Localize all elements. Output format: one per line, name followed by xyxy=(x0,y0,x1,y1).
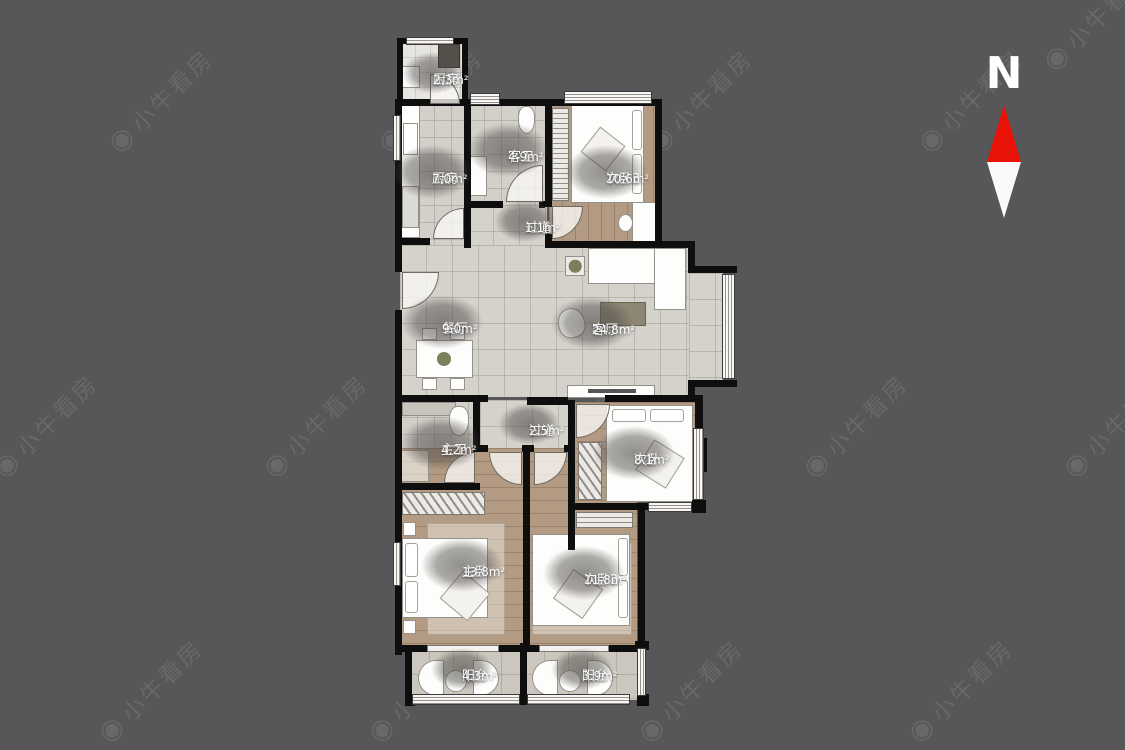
room-area: 8.1m² xyxy=(634,453,670,469)
table-plant xyxy=(437,352,451,366)
window xyxy=(393,542,401,586)
room-area: 24.8m² xyxy=(592,323,635,339)
window xyxy=(637,648,646,696)
pillow xyxy=(405,543,418,577)
wall xyxy=(688,380,737,387)
wardrobe xyxy=(402,492,485,515)
wall xyxy=(575,503,650,510)
window xyxy=(470,93,500,105)
watermark: ◉小牛看房 xyxy=(100,40,219,159)
plant xyxy=(565,256,585,276)
watermark: ◉小牛看房 xyxy=(0,365,105,484)
wall xyxy=(545,241,695,248)
room-area: 3.9m² xyxy=(582,669,618,685)
compass: N xyxy=(972,52,1036,218)
wall xyxy=(471,201,503,208)
watermark-text: 小牛看房 xyxy=(1077,365,1125,463)
room-area: 2.3m² xyxy=(433,73,469,89)
room-area: 4.9m² xyxy=(508,150,544,166)
watermark: ◉小牛看房 xyxy=(1055,365,1125,484)
room-area: 10.6m² xyxy=(606,172,649,188)
pillow xyxy=(650,409,684,422)
bay-window-floor xyxy=(689,273,723,380)
wall xyxy=(605,395,702,402)
wall xyxy=(400,238,430,245)
window xyxy=(693,428,704,500)
floor-plan-image: ◉小牛看房 ◉小牛看房 ◉小牛看房 ◉小牛看房 ◉小牛看房 ◉小牛看房 ◉小牛看… xyxy=(0,0,1125,750)
wardrobe xyxy=(576,512,633,528)
wall xyxy=(655,99,662,248)
sofa-chaise xyxy=(654,248,686,310)
nightstand xyxy=(403,522,416,536)
wall xyxy=(523,452,530,650)
chair xyxy=(618,214,633,232)
pillow xyxy=(612,409,646,422)
room-area: 13.8m² xyxy=(462,565,505,581)
chair xyxy=(422,378,437,390)
room-area: 2.5m² xyxy=(529,424,565,440)
watermark-text: 小牛看房 xyxy=(1057,0,1125,56)
watermark-text: 小牛看房 xyxy=(7,365,105,463)
floor-plan: 厨房2.3m² 厨房7.0m² 客卫4.9m² 次卧310.6m² 过道1.1m… xyxy=(392,38,740,710)
compass-needle-north-icon xyxy=(987,105,1021,162)
room-area: 7.0m² xyxy=(432,172,468,188)
watermark: ◉小牛看房 xyxy=(90,630,209,749)
window xyxy=(648,502,692,512)
compass-needle-south-icon xyxy=(987,162,1021,218)
room-area: 4.3m² xyxy=(462,669,498,685)
room-area: 1.1m² xyxy=(525,221,561,237)
balcony-railing-window xyxy=(527,694,630,705)
watermark: ◉小牛看房 xyxy=(795,365,914,484)
watermark: ◉小牛看房 xyxy=(900,630,1019,749)
north-label: N xyxy=(972,52,1036,96)
wall xyxy=(564,445,569,452)
watermark-text: 小牛看房 xyxy=(277,365,375,463)
tv xyxy=(588,389,636,393)
watermark: ◉小牛看房 xyxy=(1035,0,1125,78)
desk xyxy=(632,202,656,246)
wall xyxy=(395,483,480,490)
wall xyxy=(520,643,527,705)
watermark-text: 小牛看房 xyxy=(922,630,1020,728)
bay-window xyxy=(722,274,735,379)
watermark: ◉小牛看房 xyxy=(255,365,374,484)
watermark-text: 小牛看房 xyxy=(817,365,915,463)
window xyxy=(406,37,454,45)
pillow xyxy=(632,110,642,150)
wall xyxy=(638,510,645,650)
watermark-text: 小牛看房 xyxy=(112,630,210,728)
wardrobe xyxy=(552,108,569,201)
wall xyxy=(688,266,737,273)
wall xyxy=(499,645,539,652)
pillow xyxy=(405,581,418,613)
wall xyxy=(522,445,534,452)
window xyxy=(564,91,652,104)
wall xyxy=(568,400,575,550)
vanity-counter xyxy=(402,402,456,416)
watermark-text: 小牛看房 xyxy=(122,40,220,138)
balcony-railing-window xyxy=(412,694,520,705)
room-area: 9.0m² xyxy=(442,322,478,338)
room-area: 11.8m² xyxy=(584,573,627,589)
room-area: 4.2m² xyxy=(441,443,477,459)
chair xyxy=(450,378,465,390)
nightstand xyxy=(403,620,416,634)
